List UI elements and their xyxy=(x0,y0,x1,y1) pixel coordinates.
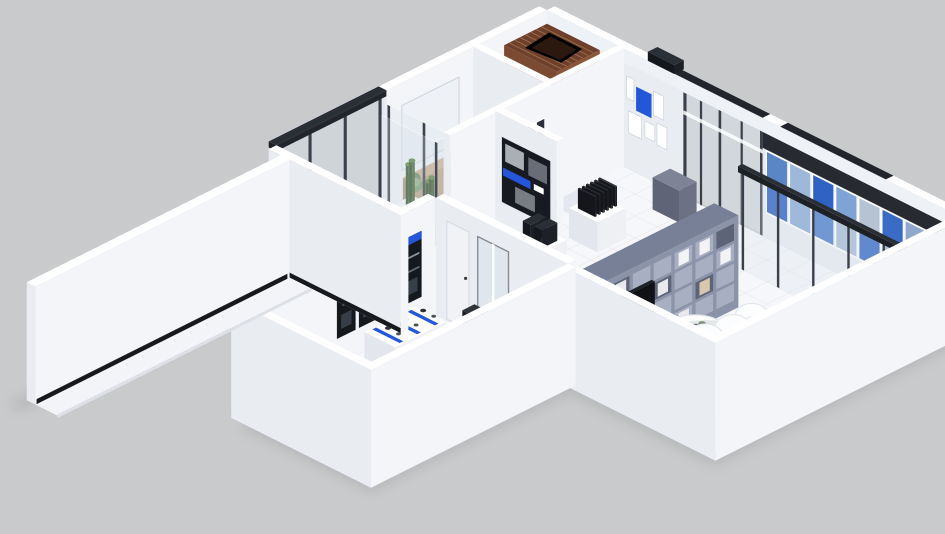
display-tablet-side-right xyxy=(595,196,597,217)
terrace-glass-post xyxy=(379,97,382,211)
entrance-mullion xyxy=(700,100,702,205)
table-product-1 xyxy=(420,309,426,313)
render-stage: 3D isometric cutaway render of a white s… xyxy=(0,0,945,534)
display-tablet-side-right xyxy=(611,188,613,209)
entrance-mullion xyxy=(719,110,722,215)
sw-wall-body-side-right xyxy=(401,211,409,333)
table-product-2 xyxy=(431,315,436,318)
parapet-wall-side-left xyxy=(27,282,36,404)
display-tablet-side-right xyxy=(603,192,605,213)
cert-white xyxy=(654,91,664,120)
table-product-2 xyxy=(414,324,419,327)
right-end-wall-side-left xyxy=(708,339,716,461)
corridor-post xyxy=(742,169,744,270)
display-tablet-side-right xyxy=(599,194,601,215)
isometric-floorplan-render xyxy=(0,0,945,534)
door-handle xyxy=(464,277,467,280)
display-tablet-side-right xyxy=(607,190,609,211)
wing-sw-wall-side-right xyxy=(371,366,379,488)
cert-white xyxy=(627,76,634,102)
corridor-post xyxy=(777,187,779,288)
cert-white xyxy=(657,123,667,150)
display-tablet-side-right xyxy=(615,186,617,207)
